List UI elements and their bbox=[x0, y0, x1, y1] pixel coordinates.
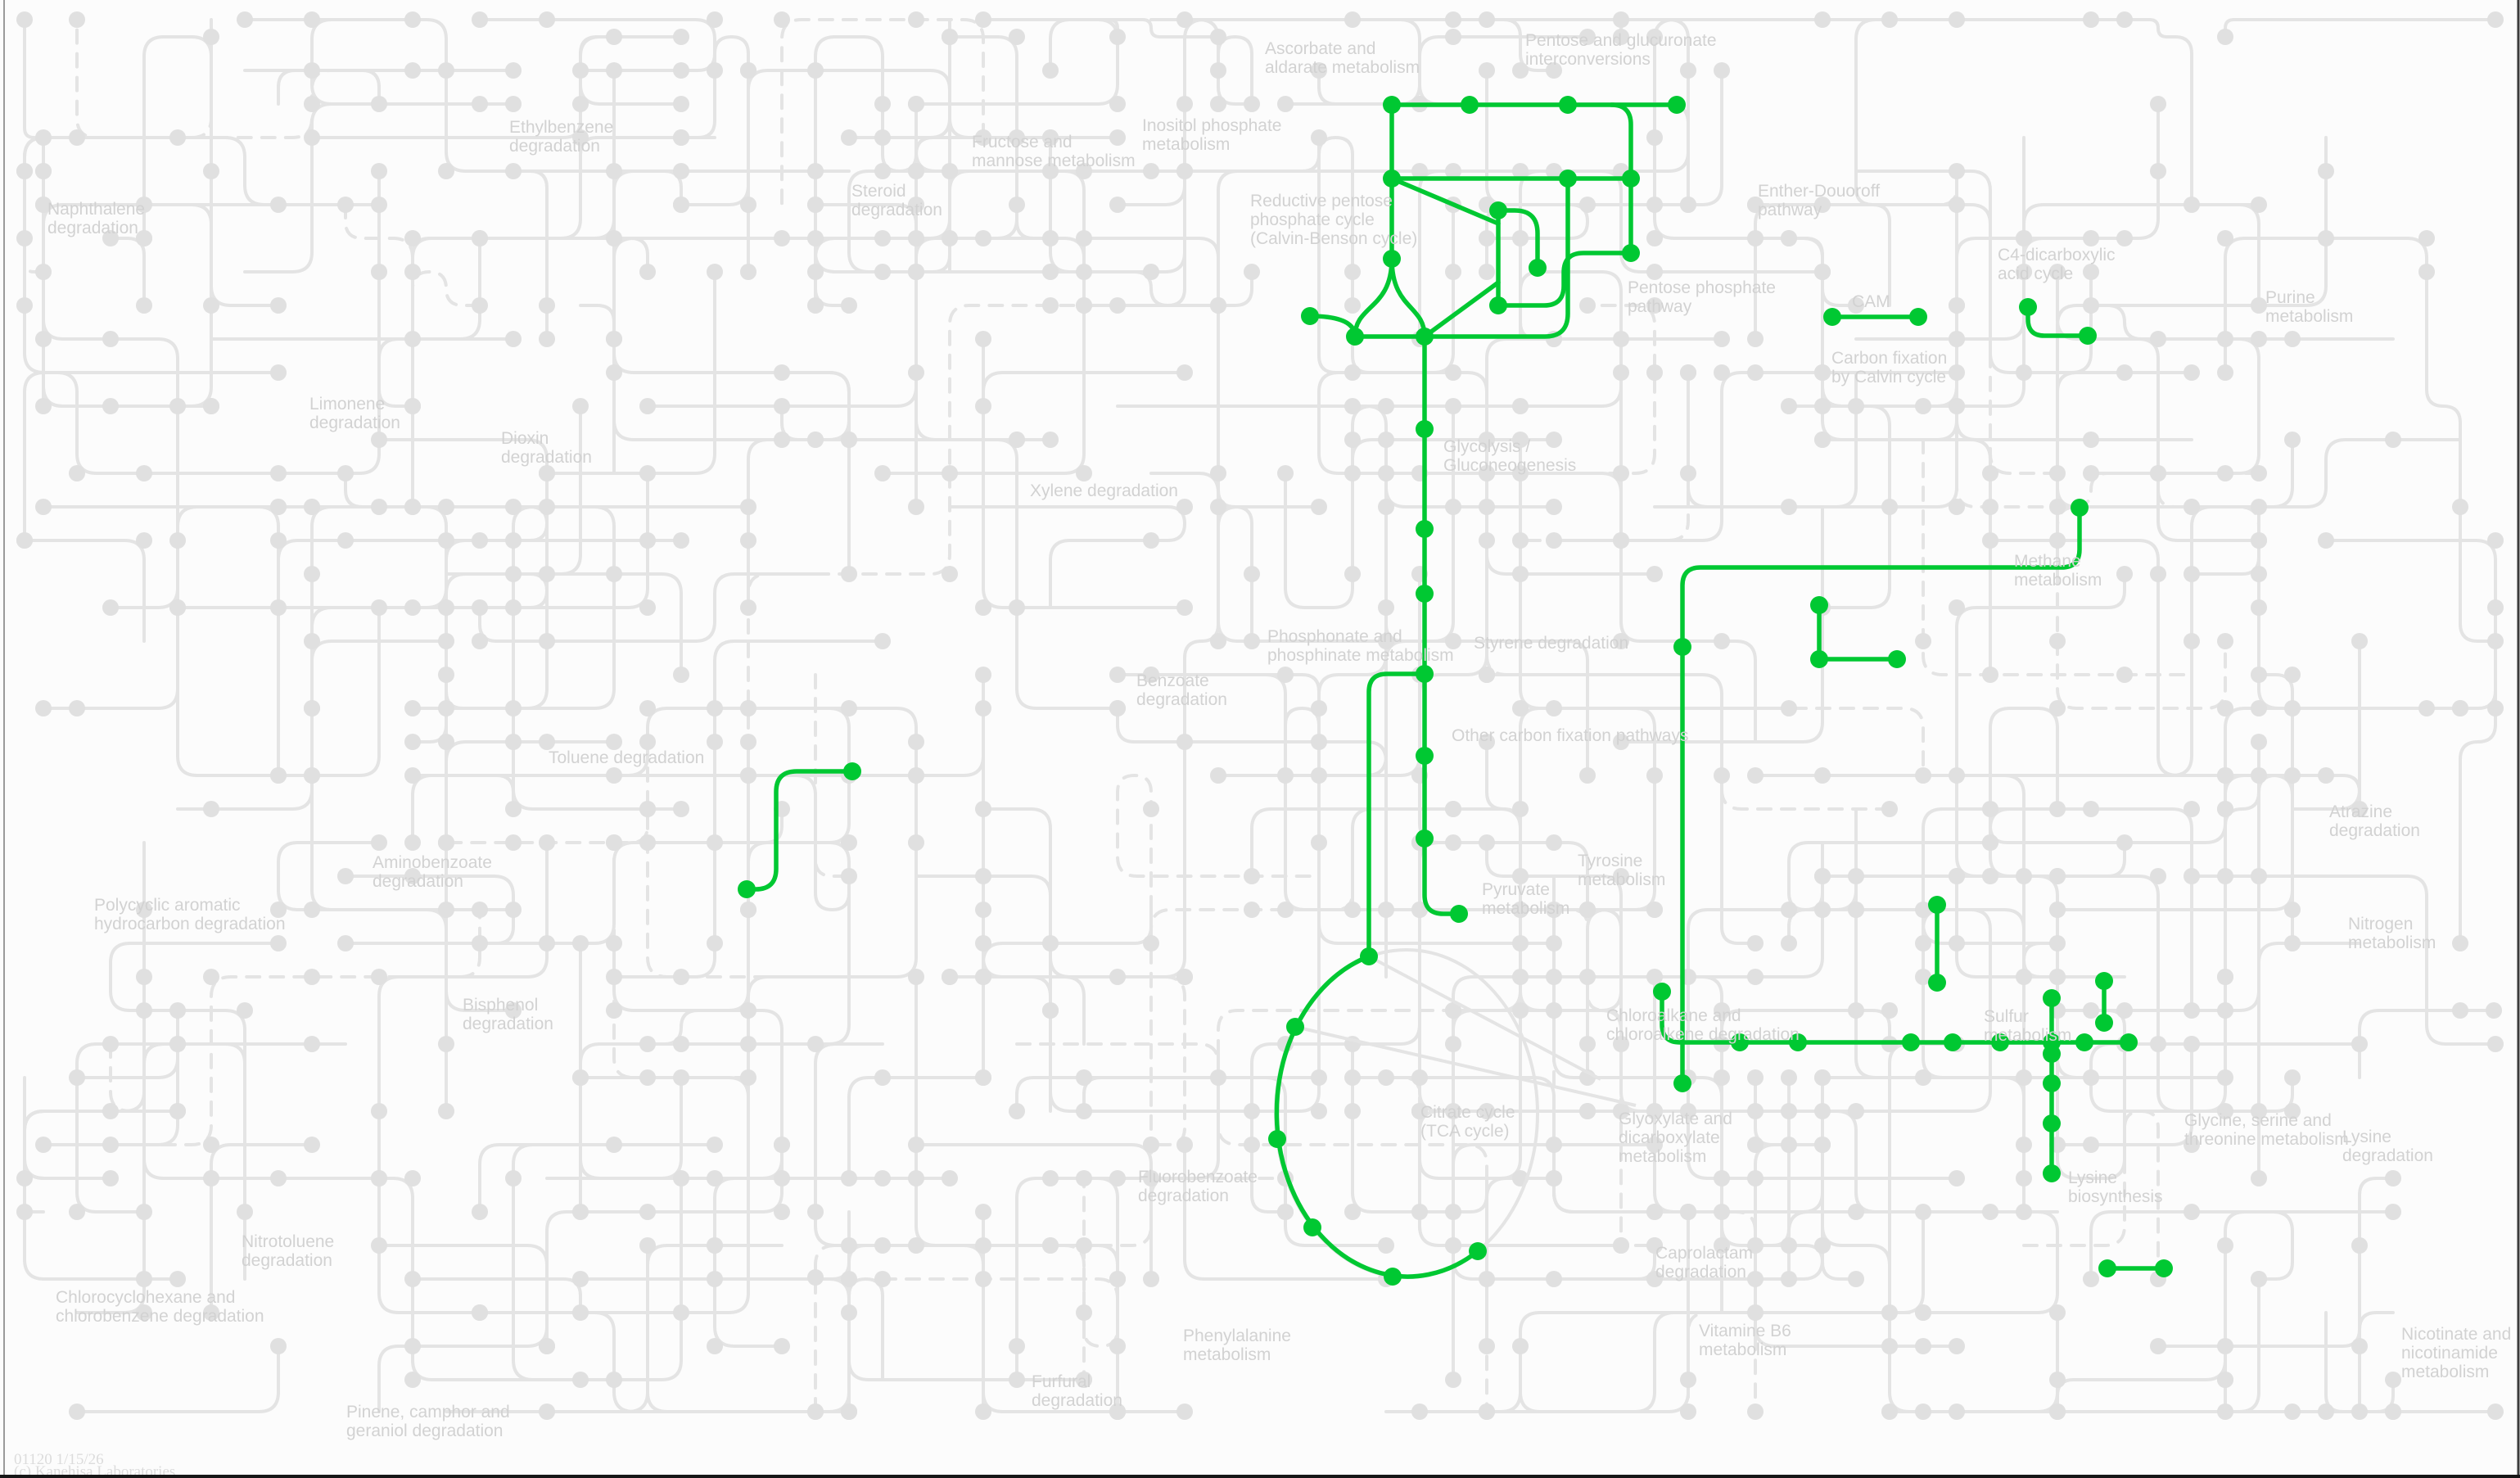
pathway-node[interactable] bbox=[1286, 1018, 1304, 1036]
pathway-label-limonene-degradation[interactable]: Limonenedegradation bbox=[309, 395, 400, 432]
pathway-edge[interactable] bbox=[1498, 253, 1631, 305]
pathway-label-line: Phenylalanine bbox=[1183, 1327, 1291, 1345]
pathway-label-line: metabolism bbox=[2401, 1363, 2489, 1381]
pathway-label-line: Xylene degradation bbox=[1030, 481, 1178, 500]
pathway-label-line: Nicotinate and bbox=[2401, 1325, 2511, 1344]
pathway-label-glycine-serine-threonine-metabolism[interactable]: Glycine, serine andthreonine metabolism bbox=[2184, 1111, 2349, 1149]
pathway-label-line: geraniol degradation bbox=[346, 1422, 503, 1440]
pathway-node[interactable] bbox=[1303, 1218, 1321, 1236]
pathway-node[interactable] bbox=[1416, 665, 1434, 683]
pathway-label-line: (TCA cycle) bbox=[1420, 1122, 1510, 1141]
pathway-label-line: Nitrogen bbox=[2348, 915, 2413, 933]
pathway-label-glyoxylate-dicarboxylate-metabolism[interactable]: Glyoxylate anddicarboxylatemetabolism bbox=[1619, 1110, 1732, 1166]
pathway-node[interactable] bbox=[1902, 1033, 1920, 1051]
pathway-label-line: Chloroalkane and bbox=[1606, 1006, 1741, 1025]
pathway-label-line: Pentose and glucuronate bbox=[1525, 31, 1717, 50]
pathway-node[interactable] bbox=[1909, 308, 1927, 326]
pathway-label-line: threonine metabolism bbox=[2184, 1130, 2349, 1149]
pathway-label-line: degradation bbox=[1032, 1391, 1122, 1410]
pathway-label-line: Polycyclic aromatic bbox=[94, 896, 241, 915]
pathway-node[interactable] bbox=[1944, 1033, 1962, 1051]
pathway-node[interactable] bbox=[1529, 259, 1547, 277]
pathway-label-line: metabolism bbox=[1699, 1340, 1786, 1359]
pathway-label-polycyclic-aromatic-hydrocarbon-degradation[interactable]: Polycyclic aromatichydrocarbon degradati… bbox=[94, 896, 286, 933]
pathway-label-line: C4-dicarboxylic bbox=[1998, 246, 2116, 264]
metabolic-map-page: Ascorbate andaldarate metabolismPentose … bbox=[0, 0, 2520, 1478]
pathway-label-line: Lysine bbox=[2342, 1128, 2391, 1146]
pathway-label-line: chlorobenzene degradation bbox=[56, 1307, 264, 1326]
pathway-label-line: Atrazine bbox=[2329, 802, 2392, 821]
pathway-node[interactable] bbox=[2095, 1014, 2113, 1032]
pathway-label-furfural-degradation[interactable]: Furfuraldegradation bbox=[1032, 1372, 1122, 1410]
pathway-label-carbon-fixation-calvin-cycle[interactable]: Carbon fixationby Calvin cycle bbox=[1831, 349, 1947, 386]
pathway-label-line: Inositol phosphate bbox=[1142, 116, 1281, 135]
pathway-label-line: Benzoate bbox=[1136, 671, 1209, 690]
pathway-node[interactable] bbox=[2019, 298, 2037, 316]
pathway-label-nitrotoluene-degradation[interactable]: Nitrotoluenedegradation bbox=[242, 1232, 334, 1270]
pathway-label-line: degradation bbox=[373, 872, 463, 891]
pathway-node[interactable] bbox=[1416, 520, 1434, 538]
pathway-node[interactable] bbox=[1346, 328, 1364, 346]
pathway-label-inositol-phosphate-metabolism[interactable]: Inositol phosphatemetabolism bbox=[1142, 116, 1281, 154]
pathway-label-line: dicarboxylate bbox=[1619, 1128, 1720, 1147]
pathway-label-other-carbon-fixation-pathways[interactable]: Other carbon fixation pathways bbox=[1452, 726, 1689, 745]
pathway-label-benzoate-degradation[interactable]: Benzoatedegradation bbox=[1136, 671, 1227, 709]
pathway-label-line: chloroalkene degradation bbox=[1606, 1025, 1800, 1044]
pathway-label-line: degradation bbox=[47, 219, 138, 237]
pathway-label-line: Ascorbate and bbox=[1265, 39, 1375, 58]
pathway-label-atrazine-degradation[interactable]: Atrazinedegradation bbox=[2329, 802, 2420, 840]
pathway-label-line: degradation bbox=[242, 1251, 332, 1270]
pathway-node[interactable] bbox=[2043, 1045, 2061, 1063]
pathway-label-line: Tyrosine bbox=[1578, 852, 1642, 870]
pathway-label-line: pathway bbox=[1628, 297, 1692, 316]
pathway-node[interactable] bbox=[1383, 96, 1401, 114]
pathway-label-citrate-cycle-tca[interactable]: Citrate cycle(TCA cycle) bbox=[1420, 1103, 1515, 1141]
pathway-label-line: CAM bbox=[1852, 292, 1890, 311]
pathway-label-line: by Calvin cycle bbox=[1831, 368, 1946, 386]
pathway-label-line: Phosphonate and bbox=[1267, 627, 1402, 646]
pathway-label-toluene-degradation[interactable]: Toluene degradation bbox=[549, 748, 704, 767]
pathway-label-line: degradation bbox=[851, 201, 942, 219]
pathway-label-line: Nitrotoluene bbox=[242, 1232, 334, 1251]
pathway-label-line: phosphinate metabolism bbox=[1267, 646, 1454, 665]
pathway-node[interactable] bbox=[1673, 1074, 1691, 1092]
pathway-label-line: Caprolactam bbox=[1655, 1244, 1753, 1263]
pathway-label-nitrogen-metabolism[interactable]: Nitrogenmetabolism bbox=[2348, 915, 2436, 952]
pathway-label-aminobenzoate-degradation[interactable]: Aminobenzoatedegradation bbox=[373, 853, 492, 891]
pathway-label-line: degradation bbox=[1138, 1186, 1229, 1205]
pathway-node[interactable] bbox=[1888, 650, 1906, 668]
pathway-label-bisphenol-degradation[interactable]: Bisphenoldegradation bbox=[463, 996, 553, 1033]
pathway-label-line: Steroid bbox=[851, 182, 906, 201]
pathway-label-line: interconversions bbox=[1525, 50, 1651, 69]
pathway-node[interactable] bbox=[2043, 1074, 2061, 1092]
pathway-node[interactable] bbox=[1810, 650, 1828, 668]
pathway-label-phenylalanine-metabolism[interactable]: Phenylalaninemetabolism bbox=[1183, 1327, 1291, 1364]
pathway-node[interactable] bbox=[1416, 829, 1434, 847]
pathway-node[interactable] bbox=[2120, 1033, 2138, 1051]
pathway-label-line: Glycine, serine and bbox=[2184, 1111, 2332, 1130]
pathway-node[interactable] bbox=[1668, 96, 1686, 114]
pathway-label-lysine-biosynthesis[interactable]: Lysinebiosynthesis bbox=[2068, 1168, 2163, 1206]
pathway-node[interactable] bbox=[1810, 596, 1828, 614]
pathway-label-line: biosynthesis bbox=[2068, 1187, 2163, 1206]
pathway-label-line: Pinene, camphor and bbox=[346, 1403, 510, 1422]
pathway-label-line: degradation bbox=[1655, 1263, 1746, 1281]
pathway-label-line: metabolism bbox=[1142, 135, 1230, 154]
pathway-label-chlorocyclohexane-chlorobenzene-degradation[interactable]: Chlorocyclohexane andchlorobenzene degra… bbox=[56, 1288, 264, 1326]
pathway-label-line: hydrocarbon degradation bbox=[94, 915, 286, 933]
pathway-label-line: metabolism bbox=[1183, 1345, 1271, 1364]
pathway-label-lysine-degradation[interactable]: Lysinedegradation bbox=[2342, 1128, 2433, 1165]
pathway-edge[interactable] bbox=[1819, 605, 1897, 659]
pathway-label-c4-dicarboxylic-acid-cycle[interactable]: C4-dicarboxylicacid cycle bbox=[1998, 246, 2116, 283]
pathway-label-line: Pentose phosphate bbox=[1628, 278, 1776, 297]
pathway-label-styrene-degradation[interactable]: Styrene degradation bbox=[1474, 634, 1628, 653]
pathway-label-pyruvate-metabolism[interactable]: Pyruvatemetabolism bbox=[1482, 880, 1569, 918]
pathway-node[interactable] bbox=[2098, 1259, 2116, 1277]
pathway-label-line: Limonene bbox=[309, 395, 385, 414]
pathway-label-line: metabolism bbox=[1578, 870, 1665, 889]
pathway-node[interactable] bbox=[1469, 1242, 1487, 1260]
pathway-label-line: Purine bbox=[2265, 288, 2315, 307]
pathway-node[interactable] bbox=[1268, 1130, 1286, 1148]
pathway-label-line: Fluorobenzoate bbox=[1138, 1168, 1258, 1186]
pathway-label-line: metabolism bbox=[1482, 899, 1569, 918]
pathway-label-steroid-degradation[interactable]: Steroiddegradation bbox=[851, 182, 942, 219]
pathway-label-line: Toluene degradation bbox=[549, 748, 704, 767]
pathway-node[interactable] bbox=[2095, 972, 2113, 990]
pathway-label-line: degradation bbox=[501, 448, 592, 467]
pathway-label-line: metabolism bbox=[1619, 1147, 1706, 1166]
pathway-label-line: Ethylbenzene bbox=[509, 118, 613, 137]
pathway-label-line: degradation bbox=[1136, 690, 1227, 709]
pathway-label-line: Lysine bbox=[2068, 1168, 2117, 1187]
pathway-node[interactable] bbox=[1928, 974, 1946, 992]
pathway-node[interactable] bbox=[2079, 327, 2097, 345]
pathway-label-line: phosphate cycle bbox=[1250, 210, 1375, 229]
pathway-label-caprolactam-degradation[interactable]: Caprolactamdegradation bbox=[1655, 1244, 1753, 1281]
pathway-node[interactable] bbox=[1360, 947, 1378, 965]
pathway-label-line: (Calvin-Benson cycle) bbox=[1250, 229, 1417, 248]
pathway-label-line: Methane bbox=[2014, 552, 2081, 571]
pathway-node[interactable] bbox=[843, 762, 861, 780]
pathway-label-line: degradation bbox=[509, 137, 600, 156]
pathway-label-line: Chlorocyclohexane and bbox=[56, 1288, 235, 1307]
pathway-node[interactable] bbox=[1653, 983, 1671, 1001]
pathway-label-ascorbate-aldarate-metabolism[interactable]: Ascorbate andaldarate metabolism bbox=[1265, 39, 1420, 77]
pathway-node[interactable] bbox=[738, 880, 756, 898]
pathway-node[interactable] bbox=[1383, 250, 1401, 268]
pathway-node[interactable] bbox=[2043, 1164, 2061, 1182]
pathway-node[interactable] bbox=[1450, 905, 1468, 923]
metabolic-map-canvas: Ascorbate andaldarate metabolismPentose … bbox=[0, 0, 2520, 1478]
pathway-node[interactable] bbox=[2075, 1033, 2093, 1051]
pathway-node[interactable] bbox=[2043, 989, 2061, 1007]
pathway-label-dioxin-degradation[interactable]: Dioxindegradation bbox=[501, 429, 592, 467]
pathway-node[interactable] bbox=[1928, 896, 1946, 914]
pathway-label-line: Naphthalene bbox=[47, 200, 145, 219]
pathway-label-line: Sulfur bbox=[1984, 1007, 2029, 1026]
pathway-node[interactable] bbox=[1622, 169, 1640, 188]
pathway-label-cam[interactable]: CAM bbox=[1852, 292, 1890, 311]
pathway-node[interactable] bbox=[2043, 1114, 2061, 1132]
pathway-label-line: metabolism bbox=[2014, 571, 2102, 590]
pathway-label-line: nicotinamide bbox=[2401, 1344, 2498, 1363]
pathway-label-line: pathway bbox=[1758, 201, 1822, 219]
pathway-node[interactable] bbox=[1673, 638, 1691, 656]
pathway-node[interactable] bbox=[1823, 308, 1841, 326]
pathway-label-line: Fructose and bbox=[972, 133, 1073, 151]
map-version-text: 01120 1/15/26(c) Kanehisa Laboratories bbox=[14, 1451, 175, 1478]
pathway-label-line: metabolism bbox=[2265, 307, 2353, 326]
pathway-label-line: Carbon fixation bbox=[1831, 349, 1947, 368]
pathway-node[interactable] bbox=[1416, 747, 1434, 765]
pathway-label-line: Styrene degradation bbox=[1474, 634, 1628, 653]
pathway-label-line: metabolism bbox=[1984, 1026, 2071, 1045]
pathway-label-line: Citrate cycle bbox=[1420, 1103, 1515, 1122]
pathway-label-line: Bisphenol bbox=[463, 996, 538, 1015]
pathway-label-xylene-degradation[interactable]: Xylene degradation bbox=[1030, 481, 1178, 500]
pathway-label-line: Reductive pentose bbox=[1250, 192, 1393, 210]
pathway-label-line: degradation bbox=[2342, 1146, 2433, 1165]
pathway-label-line: Furfural bbox=[1032, 1372, 1091, 1391]
pathway-node[interactable] bbox=[1489, 296, 1507, 314]
pathway-node[interactable] bbox=[1416, 328, 1434, 346]
pathway-label-line: Pyruvate bbox=[1482, 880, 1550, 899]
pathway-node[interactable] bbox=[1559, 96, 1577, 114]
pathway-label-line: degradation bbox=[2329, 821, 2420, 840]
pathway-node[interactable] bbox=[1416, 420, 1434, 438]
pathway-node[interactable] bbox=[1383, 169, 1401, 188]
pathway-node[interactable] bbox=[2071, 499, 2089, 517]
pathway-node[interactable] bbox=[1489, 201, 1507, 219]
pathway-label-line: Enther-Douoroff bbox=[1758, 182, 1880, 201]
pathway-label-line: degradation bbox=[309, 414, 400, 432]
pathway-label-line: Other carbon fixation pathways bbox=[1452, 726, 1689, 745]
pathway-label-vitamine-b6-metabolism[interactable]: Vitamine B6metabolism bbox=[1699, 1322, 1791, 1359]
pathway-label-pinene-camphor-geraniol-degradation[interactable]: Pinene, camphor andgeraniol degradation bbox=[346, 1403, 510, 1440]
pathway-label-methane-metabolism[interactable]: Methanemetabolism bbox=[2014, 552, 2102, 590]
pathway-label-nicotinate-nicotinamide-metabolism[interactable]: Nicotinate andnicotinamidemetabolism bbox=[2401, 1325, 2511, 1381]
pathway-label-tyrosine-metabolism[interactable]: Tyrosinemetabolism bbox=[1578, 852, 1665, 889]
pathway-label-naphthalene-degradation[interactable]: Naphthalenedegradation bbox=[47, 200, 145, 237]
pathway-label-pentose-phosphate-pathway[interactable]: Pentose phosphatepathway bbox=[1628, 278, 1776, 316]
pathway-node[interactable] bbox=[1461, 96, 1479, 114]
pathway-label-line: Gluconeogenesis bbox=[1443, 456, 1576, 475]
pathway-label-line: metabolism bbox=[2348, 933, 2436, 952]
pathway-node[interactable] bbox=[1559, 169, 1577, 188]
pathway-label-line: Aminobenzoate bbox=[373, 853, 492, 872]
pathway-node[interactable] bbox=[1622, 244, 1640, 262]
pathway-label-line: Dioxin bbox=[501, 429, 549, 448]
pathway-label-line: mannose metabolism bbox=[972, 151, 1136, 170]
pathway-label-line: Glycolysis / bbox=[1443, 437, 1530, 456]
pathway-label-line: Glyoxylate and bbox=[1619, 1110, 1732, 1128]
pathway-node[interactable] bbox=[2155, 1259, 2173, 1277]
pathway-node[interactable] bbox=[1384, 1268, 1402, 1286]
pathway-edge[interactable] bbox=[1425, 282, 1498, 337]
pathway-edge[interactable] bbox=[747, 771, 852, 889]
pathway-node[interactable] bbox=[1301, 307, 1319, 325]
pathway-label-line: aldarate metabolism bbox=[1265, 58, 1420, 77]
pathway-label-purine-metabolism[interactable]: Purinemetabolism bbox=[2265, 288, 2353, 326]
pathway-label-line: Vitamine B6 bbox=[1699, 1322, 1791, 1340]
pathway-label-fluorobenzoate-degradation[interactable]: Fluorobenzoatedegradation bbox=[1138, 1168, 1258, 1205]
pathway-label-ethylbenzene-degradation[interactable]: Ethylbenzenedegradation bbox=[509, 118, 613, 156]
pathway-labels: Ascorbate andaldarate metabolismPentose … bbox=[14, 31, 2511, 1478]
pathway-edge[interactable] bbox=[1682, 508, 2080, 1083]
pathway-label-line: acid cycle bbox=[1998, 264, 2073, 283]
pathway-node[interactable] bbox=[1416, 585, 1434, 603]
pathway-label-line: degradation bbox=[463, 1015, 553, 1033]
